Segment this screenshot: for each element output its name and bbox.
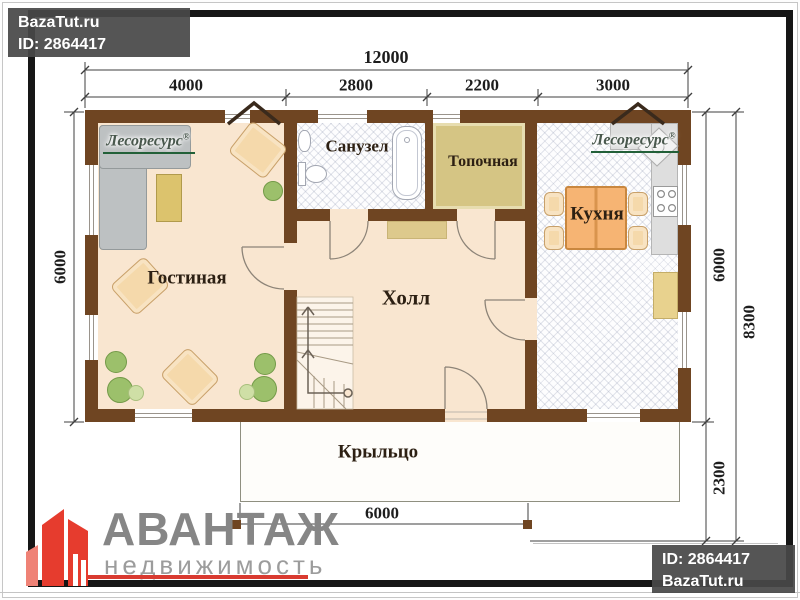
builder-watermark: Лесоресурс® [106, 131, 189, 150]
room-label-porch: Крыльцо [338, 443, 418, 462]
builder-watermark-underline [591, 151, 679, 153]
builder-name: Лесоресурс [592, 132, 668, 149]
registered-mark: ® [183, 131, 190, 141]
dim-top-segment: 2200 [465, 77, 499, 94]
dim-top-segment: 2800 [339, 77, 373, 94]
floorplan-image: Гостиная Санузел Топочная Кухня Холл Кры… [0, 0, 800, 600]
watermark-id: ID: 2864417 [662, 549, 785, 571]
staircase [297, 297, 353, 409]
roof-chevron-icon [228, 103, 280, 124]
dim-porch-width: 6000 [365, 505, 399, 522]
builder-watermark: Лесоресурс® [592, 130, 675, 149]
room-label-boiler: Топочная [448, 154, 518, 170]
dim-right-main: 6000 [711, 248, 728, 282]
dim-top-total: 12000 [364, 48, 409, 66]
registered-mark: ® [669, 130, 676, 140]
roof-chevron-icon [612, 104, 664, 124]
watermark-site: BazaTut.ru [662, 571, 785, 593]
bathtub-drain-icon [405, 138, 410, 143]
site-watermark-top-left: BazaTut.ru ID: 2864417 [8, 8, 190, 57]
builder-name: Лесоресурс [106, 133, 182, 150]
agency-name: АВАНТАЖ [102, 506, 340, 552]
door-arcs [242, 221, 525, 419]
room-label-bathroom: Санузел [326, 138, 389, 155]
builder-watermark-underline [103, 152, 195, 154]
dim-right-porch: 2300 [711, 461, 728, 495]
room-label-living: Гостиная [147, 269, 226, 288]
stove-burners-icon [658, 191, 676, 212]
dim-right-total: 8300 [741, 305, 758, 339]
room-label-kitchen: Кухня [570, 205, 624, 224]
room-label-hall: Холл [382, 288, 430, 309]
dim-top-segment: 3000 [596, 77, 630, 94]
watermark-site: BazaTut.ru [18, 12, 180, 34]
agency-logo-underline [88, 575, 308, 579]
dim-top-segment: 4000 [169, 77, 203, 94]
dim-end-marker [523, 520, 532, 529]
watermark-id: ID: 2864417 [18, 34, 180, 56]
dim-left-height: 6000 [52, 250, 69, 284]
site-watermark-bottom-right: ID: 2864417 BazaTut.ru [652, 545, 795, 593]
